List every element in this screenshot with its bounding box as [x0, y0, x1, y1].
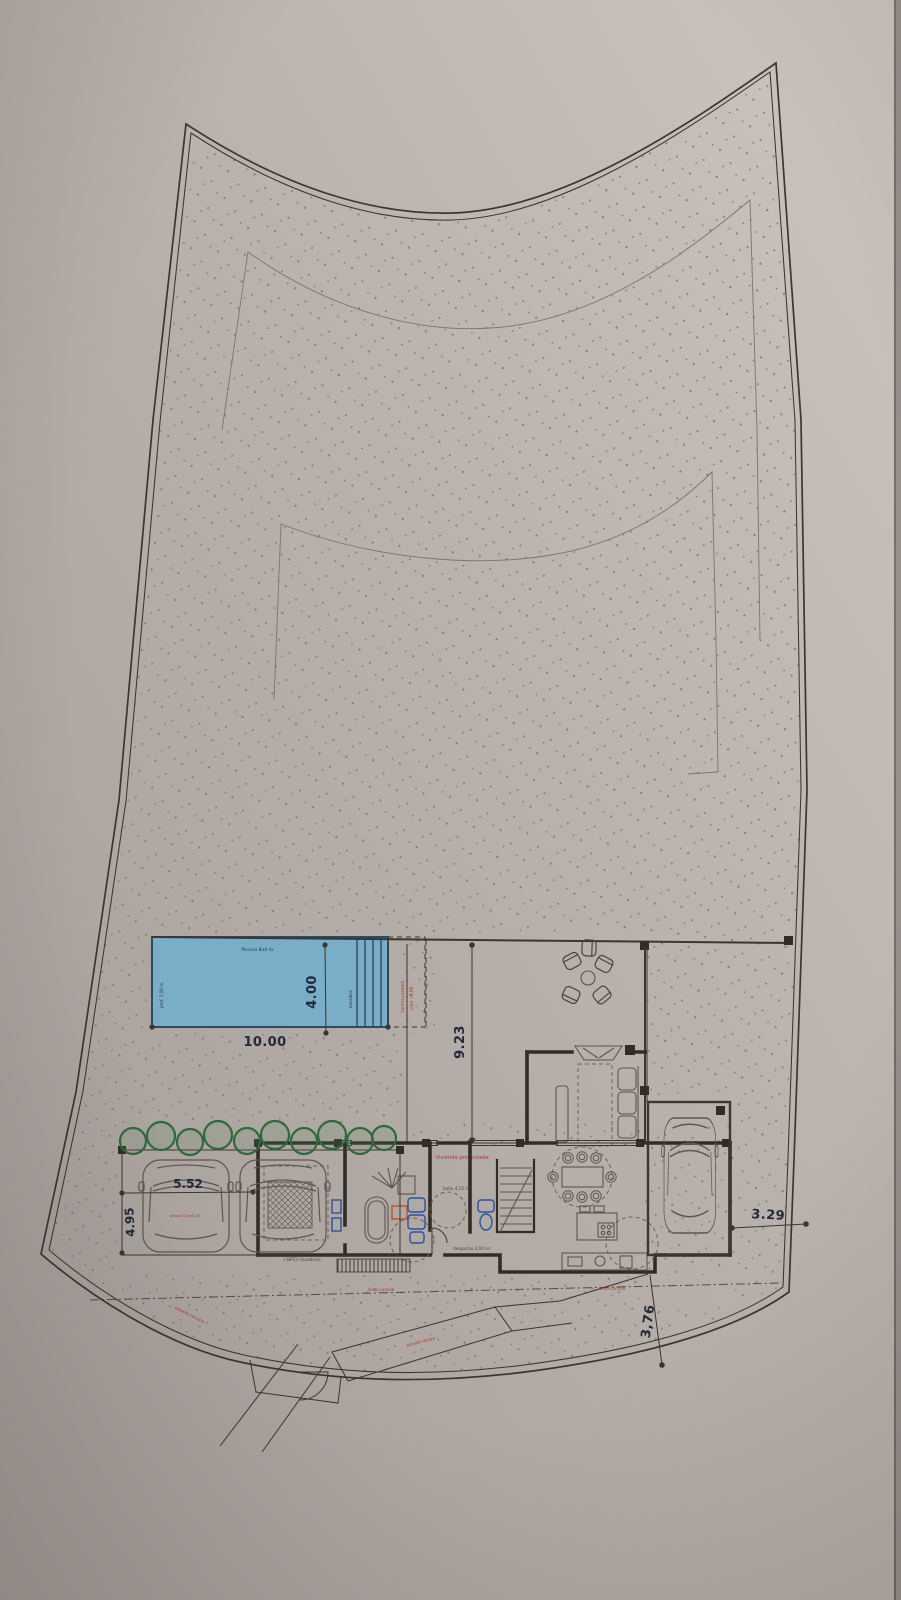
paper-edge-strip	[896, 0, 901, 1600]
house-label: Vivienda proyectada	[435, 1155, 488, 1161]
svg-text:4.95: 4.95	[122, 1207, 138, 1237]
svg-text:9.23: 9.23	[453, 1025, 468, 1059]
solarium-label-1: tarima madera	[400, 980, 405, 1012]
svg-text:3.29: 3.29	[751, 1207, 785, 1224]
facade-louvre	[337, 1259, 410, 1272]
site-plan-photo: acceso rampa rasante terreno Piscina 8x4…	[0, 0, 901, 1600]
pool-title: Piscina 8x4 m.	[241, 947, 274, 953]
svg-text:10.00: 10.00	[243, 1035, 286, 1050]
parking-slot-label: plaza 2,50x5,00	[170, 1213, 201, 1218]
laundry-label: s.NP53 (lavadero)	[283, 1257, 321, 1262]
bath-label: baño 4,15 m²	[443, 1186, 472, 1191]
office-label: despacho 4,04 m²	[453, 1246, 491, 1251]
cornice-label-right: línea cornisa	[599, 1286, 626, 1291]
svg-text:5.52: 5.52	[173, 1177, 203, 1191]
pool-depth-label: prof. 1,50 m	[159, 983, 164, 1008]
svg-text:4.00: 4.00	[305, 975, 320, 1009]
pool-steps-label: escalera	[348, 990, 353, 1008]
cornice-label-left: línea cornisa	[368, 1287, 395, 1292]
solarium-label-2: cota +0,00	[409, 986, 414, 1010]
site-plan-drawing: acceso rampa rasante terreno Piscina 8x4…	[0, 0, 901, 1600]
